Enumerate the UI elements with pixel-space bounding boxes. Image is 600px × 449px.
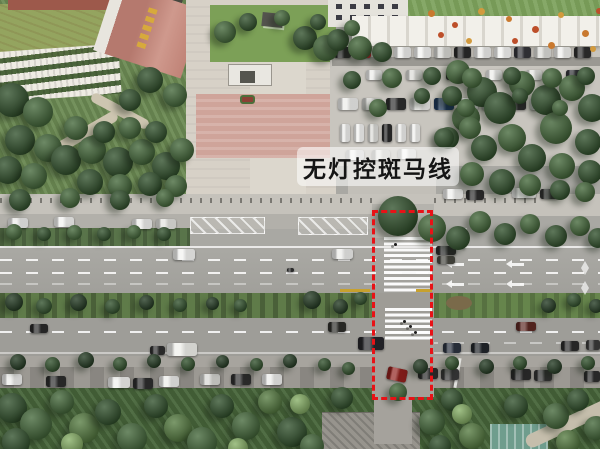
flower-patch: [596, 8, 600, 14]
tree: [460, 162, 484, 186]
vehicle: [561, 341, 579, 351]
vehicle: [437, 256, 455, 264]
tree: [344, 20, 360, 36]
vehicle: [514, 47, 531, 58]
tree: [64, 116, 88, 140]
flowerbed: [240, 95, 255, 104]
tree: [36, 298, 52, 314]
tree: [457, 99, 475, 117]
tree: [283, 354, 297, 368]
tree: [520, 214, 540, 234]
vehicle: [328, 322, 346, 332]
tree: [343, 71, 361, 89]
vehicle: [338, 98, 358, 110]
tree: [494, 223, 516, 245]
vehicle: [133, 378, 153, 389]
tree: [581, 356, 595, 370]
tree: [541, 298, 556, 313]
vehicle: [410, 124, 420, 142]
tree: [556, 430, 580, 449]
tree: [21, 163, 47, 189]
tree: [542, 68, 562, 88]
vehicle: [386, 98, 406, 110]
flower-patch: [590, 46, 596, 52]
tree: [117, 423, 147, 449]
annotation-label-text: 无灯控斑马线: [303, 150, 453, 184]
tree: [139, 295, 154, 310]
tree: [37, 227, 51, 241]
tree: [540, 112, 572, 144]
tree: [479, 359, 494, 374]
tree: [67, 225, 82, 240]
tree: [503, 67, 521, 85]
tree: [110, 190, 130, 210]
tree: [157, 227, 171, 241]
hatched-road-marking: [298, 217, 368, 235]
vehicle: [443, 189, 463, 199]
flower-patch: [582, 30, 589, 37]
tree: [518, 144, 546, 172]
tree: [459, 423, 485, 449]
tree: [5, 293, 23, 311]
flower-patch: [452, 22, 458, 28]
tree: [232, 412, 260, 440]
median-bare-patch: [446, 296, 472, 310]
westbound-carriageway: [0, 318, 600, 356]
tree: [512, 88, 528, 104]
vehicle: [262, 374, 282, 385]
vehicle: [471, 343, 489, 353]
tree: [9, 189, 31, 211]
vehicle: [394, 47, 411, 58]
tree: [434, 128, 454, 148]
tree: [543, 403, 569, 429]
tree: [333, 299, 348, 314]
lane-arrow: [512, 283, 524, 286]
tree: [414, 88, 430, 104]
tree: [445, 356, 459, 370]
vehicle: [382, 124, 392, 142]
tree: [45, 357, 60, 372]
vehicle: [494, 47, 511, 58]
tree: [147, 354, 161, 368]
vehicle: [287, 268, 294, 272]
tree: [547, 359, 562, 374]
tree: [181, 357, 195, 371]
tree: [588, 228, 600, 248]
vehicle: [574, 47, 591, 58]
vehicle: [414, 47, 431, 58]
tree: [50, 390, 74, 414]
tree: [119, 117, 141, 139]
flower-patch: [438, 32, 444, 38]
tree: [589, 299, 600, 313]
lane-line: [0, 246, 600, 248]
vehicle: [173, 249, 195, 260]
tree: [97, 227, 111, 241]
vehicle: [2, 374, 22, 385]
vehicle: [354, 124, 364, 142]
tree: [187, 427, 217, 449]
vehicle: [366, 70, 382, 80]
tree: [578, 160, 600, 184]
tree: [331, 387, 353, 409]
tree: [210, 394, 234, 418]
tree: [469, 211, 491, 233]
tree: [567, 389, 589, 411]
tree: [239, 13, 257, 31]
tree: [105, 299, 120, 314]
carport-canopy: [352, 16, 600, 46]
lane-arrow: [452, 283, 464, 286]
tree: [137, 67, 163, 93]
tree: [156, 189, 174, 207]
flower-patch: [506, 16, 512, 22]
tree: [519, 174, 541, 196]
brick-wall: [8, 0, 112, 10]
tree: [575, 129, 600, 155]
flower-patch: [512, 38, 518, 44]
guard-booth: [240, 71, 255, 83]
tree: [274, 10, 290, 26]
tree: [144, 394, 168, 418]
vehicle: [200, 374, 220, 385]
eastbound-carriageway: [0, 246, 600, 296]
tree: [23, 97, 53, 127]
tree: [423, 67, 441, 85]
rooftop-sign: [135, 7, 157, 52]
tree: [348, 36, 372, 60]
vehicle: [231, 374, 251, 385]
vehicle: [474, 47, 491, 58]
vehicle: [554, 47, 571, 58]
vehicle: [586, 340, 600, 350]
vehicle: [454, 47, 471, 58]
tree: [258, 390, 282, 414]
vehicle: [434, 47, 451, 58]
vehicle: [340, 124, 350, 142]
vehicle: [108, 377, 130, 388]
hatched-road-marking: [190, 217, 265, 234]
vehicle: [396, 124, 406, 142]
vehicle: [30, 324, 48, 333]
vehicle: [516, 322, 536, 331]
lane-line: [0, 272, 600, 274]
tree: [290, 394, 310, 414]
tree: [119, 89, 141, 111]
annotation-label: 无灯控斑马线: [297, 147, 459, 186]
tree: [216, 355, 229, 368]
tree: [513, 356, 527, 370]
tree: [303, 291, 321, 309]
crosswalk-exit-path: [374, 396, 412, 444]
tree: [173, 298, 187, 312]
tree: [60, 188, 80, 208]
vehicle: [511, 369, 531, 380]
bollard-row: [0, 198, 372, 203]
tree: [127, 225, 141, 239]
yellow-center-line: [340, 289, 370, 292]
tree: [354, 292, 367, 305]
tree: [10, 354, 26, 370]
tree: [51, 145, 81, 175]
tree: [570, 216, 590, 236]
flower-patch: [466, 38, 472, 44]
vehicle: [584, 371, 600, 382]
tree: [70, 294, 87, 311]
tree: [471, 135, 497, 161]
tree: [489, 169, 515, 195]
tree: [5, 125, 35, 155]
tree: [462, 68, 482, 88]
tree: [446, 226, 470, 250]
tree: [6, 224, 22, 240]
tree: [545, 225, 567, 247]
tree: [77, 169, 103, 195]
tree: [78, 352, 94, 368]
lane-arrow: [512, 263, 524, 266]
flower-patch: [558, 12, 564, 18]
tree: [550, 180, 570, 200]
vehicle: [466, 190, 484, 200]
tree: [214, 21, 236, 43]
lane-line: [0, 331, 600, 333]
tree: [310, 14, 326, 30]
tree: [113, 357, 127, 371]
tree: [250, 358, 263, 371]
tree: [342, 362, 355, 375]
vehicle: [332, 249, 353, 259]
tree: [369, 99, 387, 117]
tree: [2, 428, 30, 449]
vehicle: [406, 70, 422, 80]
vehicle: [534, 47, 551, 58]
vehicle: [167, 343, 197, 356]
vehicle: [368, 124, 378, 142]
tree: [459, 117, 481, 139]
tree: [552, 100, 568, 116]
tree: [145, 121, 167, 143]
tree: [577, 67, 595, 85]
tree: [318, 358, 331, 371]
tree: [93, 121, 115, 143]
flower-patch: [478, 8, 485, 15]
tree: [567, 293, 581, 307]
tree: [382, 68, 402, 88]
tree: [575, 182, 595, 202]
vehicle: [159, 376, 179, 387]
flower-patch: [548, 42, 555, 49]
tree: [61, 433, 83, 449]
vehicle: [46, 376, 66, 387]
tree: [549, 153, 575, 179]
vehicle: [441, 369, 459, 380]
tree: [578, 94, 600, 122]
tree: [234, 299, 247, 312]
tree: [170, 138, 194, 162]
tree: [95, 399, 121, 425]
tree: [129, 139, 155, 165]
tree: [372, 42, 392, 62]
flower-patch: [428, 10, 435, 17]
flower-patch: [532, 26, 539, 33]
tree: [419, 409, 445, 435]
tree: [206, 297, 219, 310]
vehicle: [443, 343, 461, 353]
tree: [452, 404, 472, 424]
aerial-photo-uncontrolled-crosswalk: 无灯控斑马线: [0, 0, 600, 449]
tree: [504, 394, 528, 418]
highlight-box: [372, 210, 433, 400]
tree: [163, 83, 187, 107]
